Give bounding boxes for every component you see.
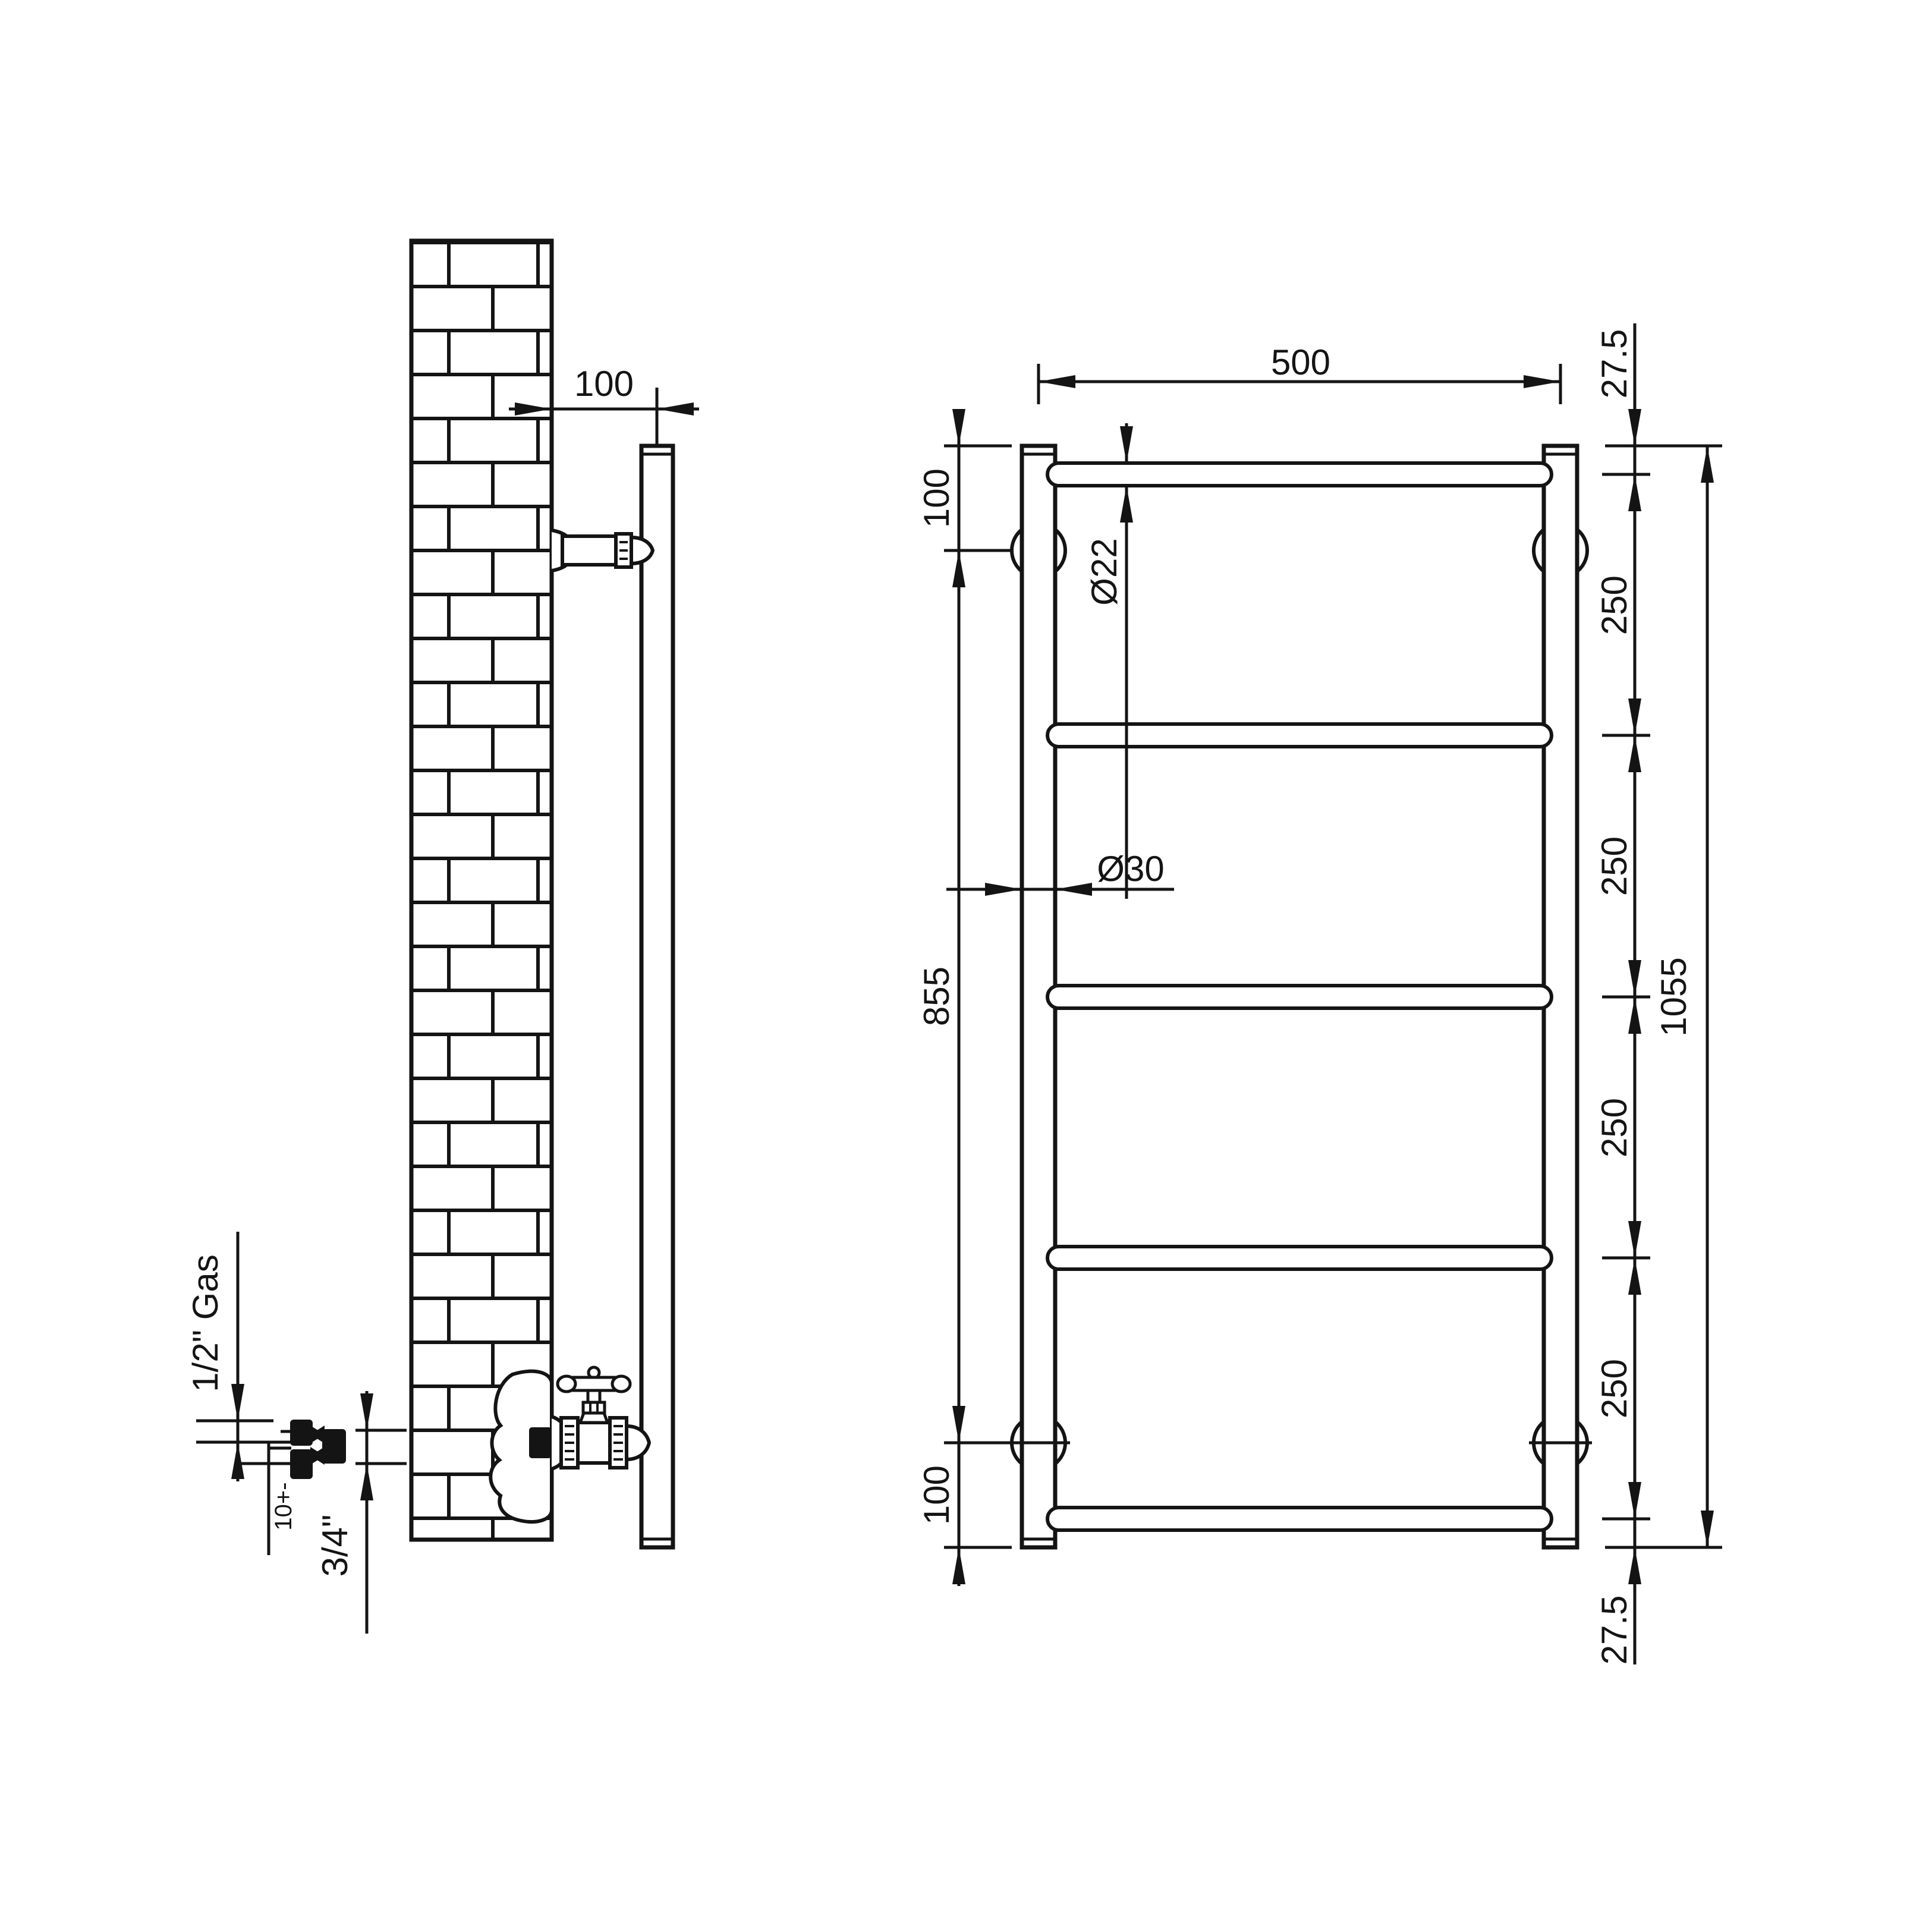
brick-wall	[411, 241, 552, 1540]
drawing-canvas: 100 1/2" Gas 10+- 3/4"	[0, 0, 1932, 1932]
dim-label-spacing-2: 250	[1594, 836, 1634, 896]
dim-label-outlet: 3/4"	[315, 1515, 355, 1577]
dim-label-rail-diameter: Ø22	[1084, 538, 1124, 605]
rail-4	[1047, 1247, 1552, 1269]
dim-label-wall-offset: 100	[574, 364, 634, 404]
radiator-side-profile	[641, 446, 673, 1547]
valve-body	[578, 1423, 610, 1463]
rail-2	[1047, 724, 1552, 747]
valve-wall-stub	[529, 1427, 552, 1458]
dim-label-bracket-bottom: 100	[917, 1465, 956, 1525]
dim-label-overall-height: 1055	[1654, 957, 1694, 1036]
dim-label-spacing-4: 250	[1594, 1359, 1634, 1418]
tap-knob-left	[558, 1376, 575, 1392]
tap-knob-right	[612, 1376, 630, 1392]
dim-label-bracket-span: 855	[917, 967, 956, 1026]
dim-label-spacing-1: 250	[1594, 575, 1634, 635]
dim-label-bottom-offset: 27.5	[1594, 1596, 1634, 1665]
bracket-body	[562, 536, 616, 565]
dim-label-top-offset: 27.5	[1594, 329, 1634, 399]
rail-1	[1047, 463, 1552, 486]
technical-drawing: 100 1/2" Gas 10+- 3/4"	[0, 0, 1932, 1932]
page-background	[0, 0, 1932, 1932]
rail-3	[1047, 986, 1552, 1008]
tap-nut	[583, 1402, 605, 1413]
dim-label-inlet: 1/2" Gas	[185, 1254, 225, 1392]
dim-label-tube-diameter: Ø30	[1097, 849, 1164, 889]
dim-label-width: 500	[1271, 342, 1330, 382]
dim-label-tolerance: 10+-	[270, 1482, 297, 1530]
rail-5	[1047, 1508, 1552, 1530]
dim-label-bracket-top: 100	[917, 468, 956, 528]
fitting-right	[322, 1429, 346, 1464]
wall-bracket	[552, 530, 653, 571]
dim-label-spacing-3: 250	[1594, 1098, 1634, 1157]
